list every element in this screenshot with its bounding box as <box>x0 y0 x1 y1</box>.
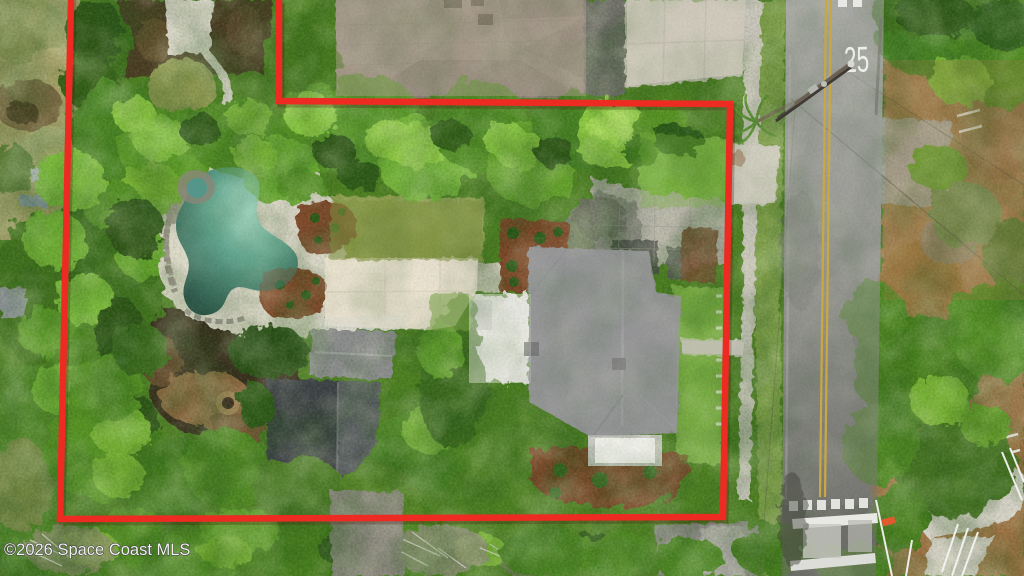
svg-text:25: 25 <box>843 38 869 80</box>
svg-text:©2026 Space Coast MLS: ©2026 Space Coast MLS <box>4 541 190 559</box>
